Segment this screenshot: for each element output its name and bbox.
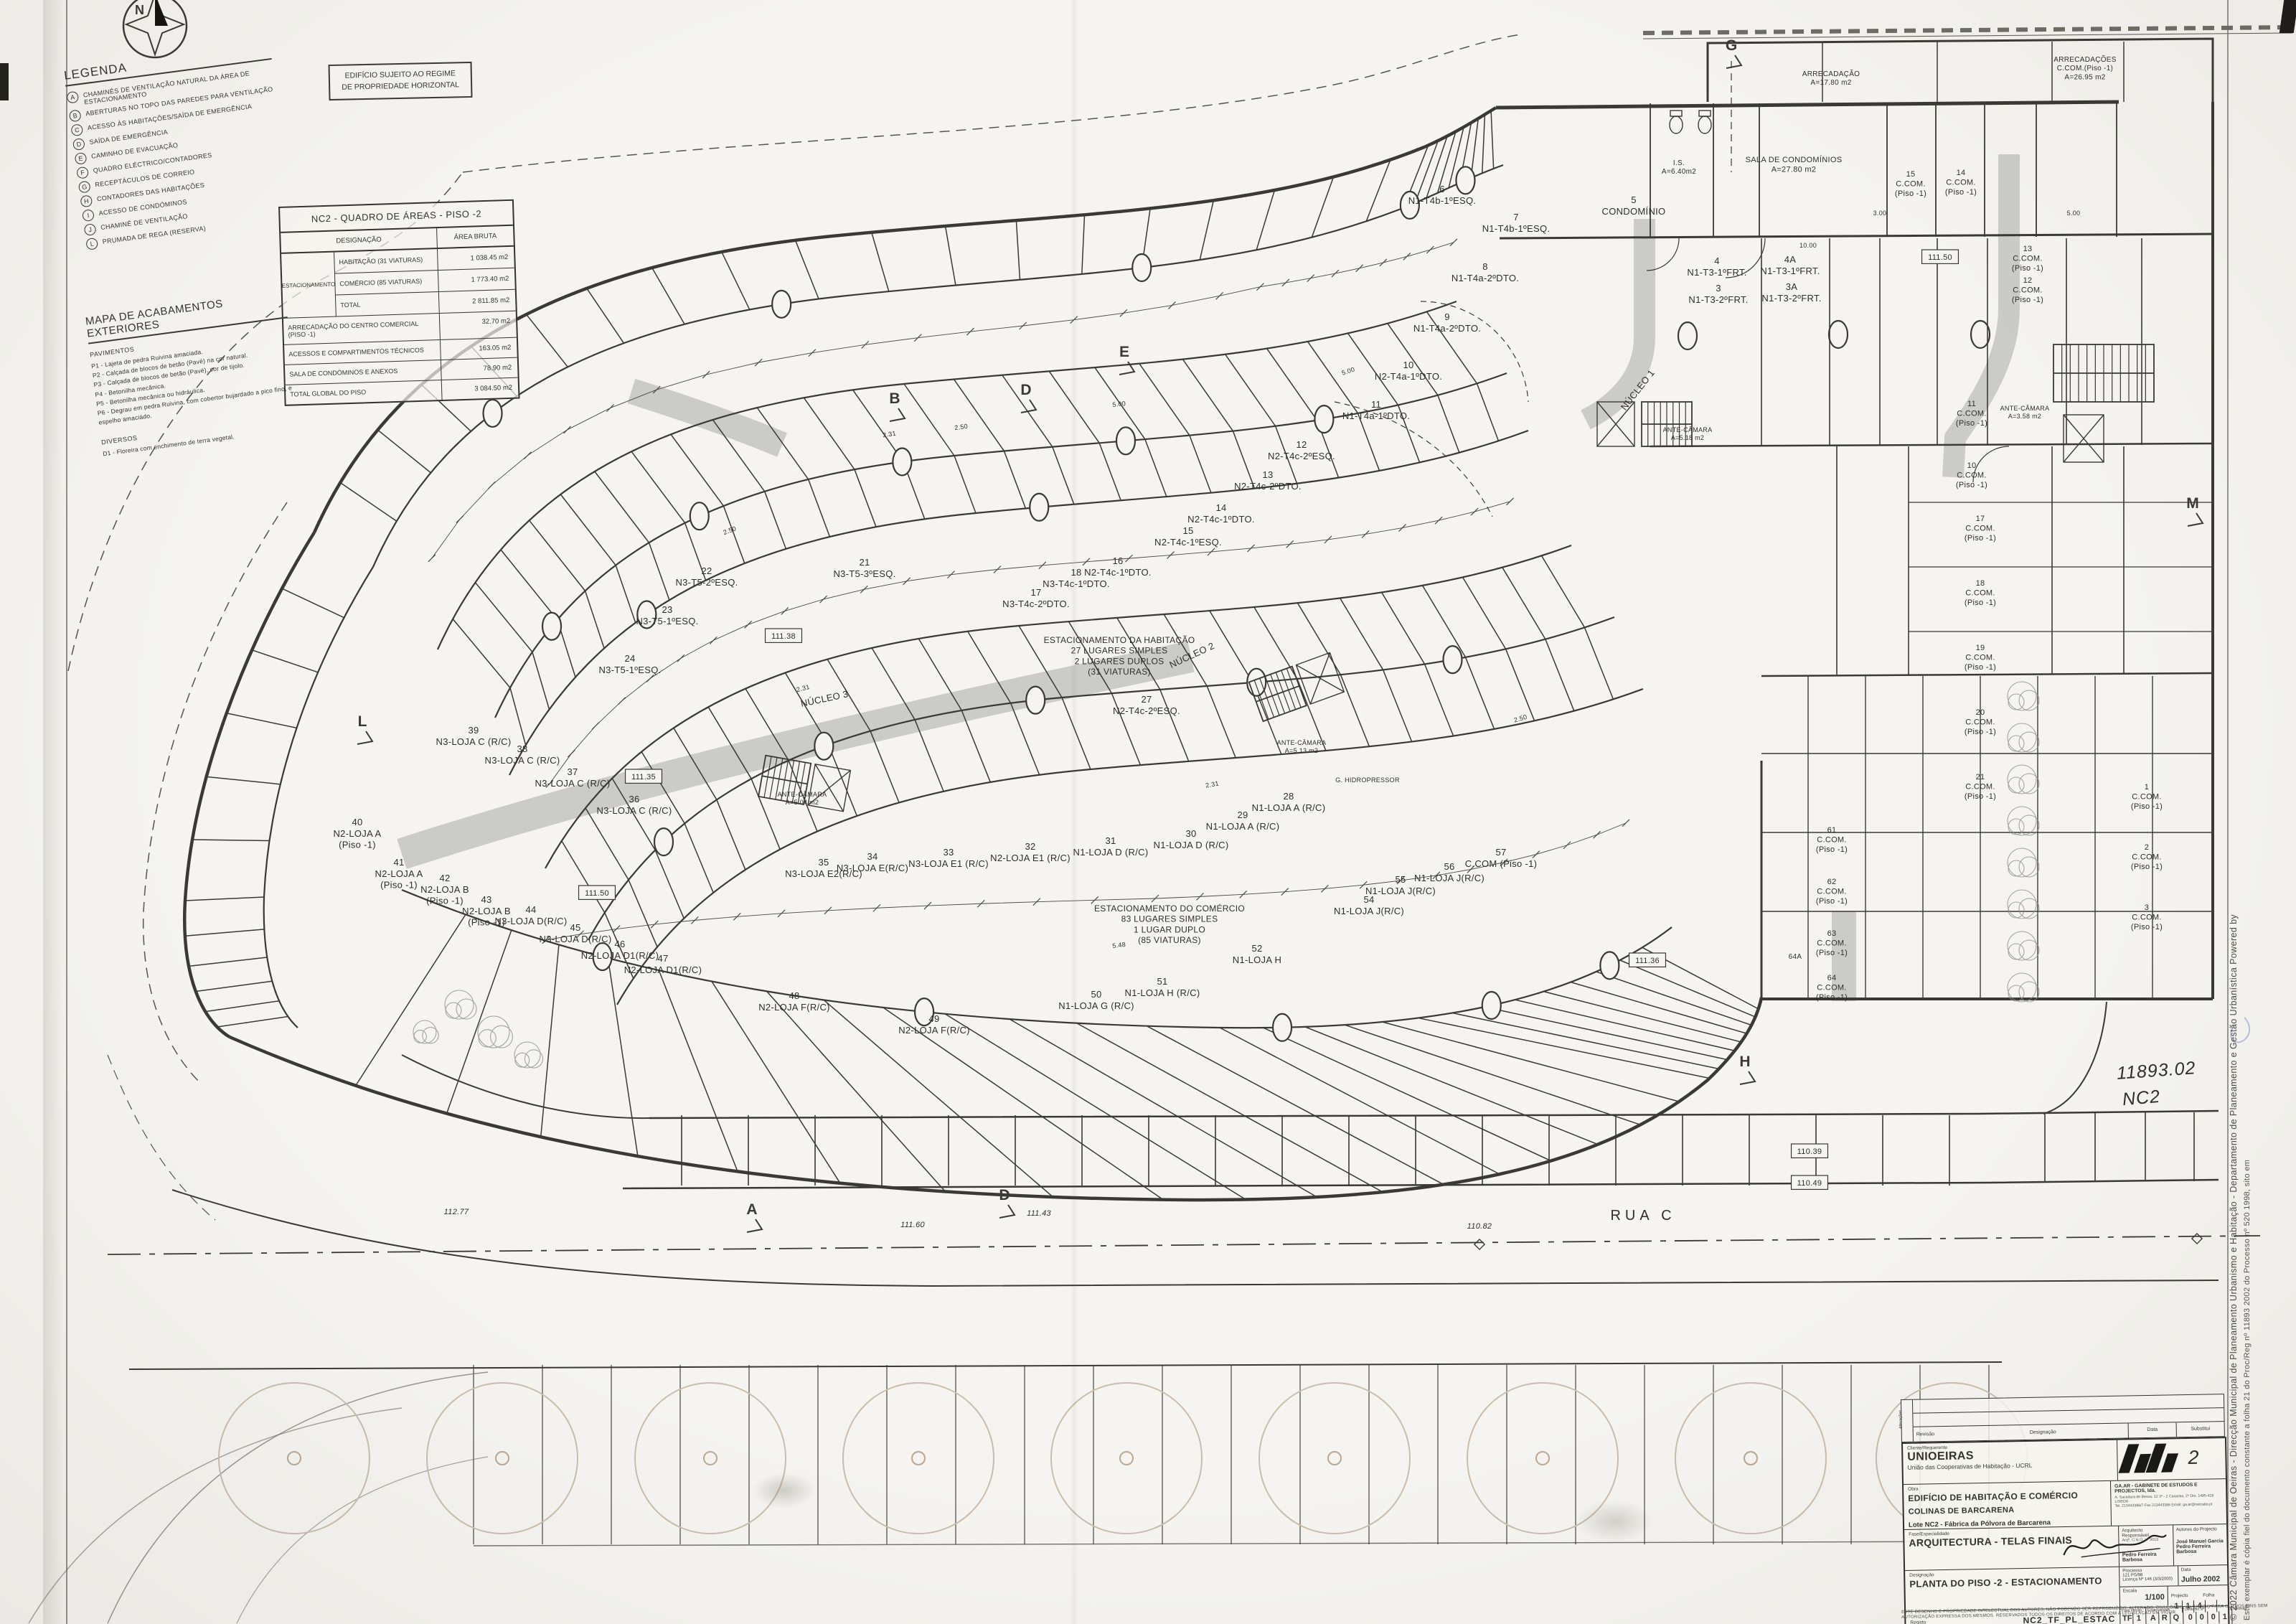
table-cell-valor: 2 811.85 m2	[439, 290, 516, 313]
plan-label: 51N1-LOJA H (R/C)	[1125, 976, 1200, 998]
plan-label: ANTE-CÂMARAA=5.18 m2	[1663, 426, 1713, 441]
svg-text:15N2-T4c-1ºESQ.: 15N2-T4c-1ºESQ.	[1154, 525, 1222, 548]
revision-table: Alterações Revisão Designação Data Subst…	[1901, 1394, 2225, 1442]
svg-text:111.50: 111.50	[1928, 253, 1952, 262]
architect-label: Arquitecto Responsável	[2122, 1527, 2170, 1538]
table-cell-valor: 163.05 m2	[441, 338, 517, 360]
col-designacao: DESIGNAÇÃO	[281, 228, 438, 253]
svg-text:62C.COM.(Piso -1): 62C.COM.(Piso -1)	[1816, 878, 1848, 906]
revision-col-data: Data	[2128, 1422, 2176, 1437]
svg-text:13N2-T4c-2ºDTO.: 13N2-T4c-2ºDTO.	[1234, 469, 1302, 492]
svg-text:17C.COM.(Piso -1): 17C.COM.(Piso -1)	[1965, 515, 1996, 543]
svg-text:2.31: 2.31	[1205, 779, 1219, 789]
plan-label: 112.77	[444, 1208, 469, 1216]
grid-marker: G	[1726, 37, 1737, 54]
svg-text:21C.COM.(Piso -1): 21C.COM.(Piso -1)	[1965, 773, 1996, 801]
svg-text:3C.COM.(Piso -1): 3C.COM.(Piso -1)	[2131, 903, 2163, 931]
svg-text:ESTACIONAMENTO DO COMÉRCIO83 L: ESTACIONAMENTO DO COMÉRCIO83 LUGARES SIM…	[1094, 903, 1245, 945]
legend-key: B	[69, 109, 82, 122]
plan-label: 42N2-LOJA B(Piso -1)	[420, 873, 469, 906]
plan-label: 111.38	[766, 629, 802, 642]
architect-credential: Arqº, C.N.O. nº 3019	[2122, 1537, 2170, 1542]
plan-label: 28N1-LOJA A (R/C)	[1252, 791, 1326, 813]
client-name: UNIOEIRAS	[1907, 1450, 1974, 1463]
finishes-map: MAPA DE ACABAMENTOS EXTERIORES PAVIMENTO…	[85, 289, 303, 459]
legend-key: I	[82, 209, 95, 222]
plan-label: 37N3-LOJA C (R/C)	[535, 766, 611, 789]
plan-label: 14C.COM.(Piso -1)	[1945, 169, 1977, 197]
plan-label: 64A	[1789, 953, 1802, 961]
svg-text:31N1-LOJA D (R/C): 31N1-LOJA D (R/C)	[1073, 835, 1149, 858]
right-wing-walls	[1496, 39, 2213, 999]
svg-text:2.50: 2.50	[722, 525, 737, 536]
firm-address2: Tel. 213443386/7 Fax 213443386 Email: ga…	[2115, 1502, 2223, 1508]
north-letter: N	[135, 3, 144, 17]
stamp-line2: Este exemplar é cópia fiel do documento …	[2243, 42, 2252, 1620]
obra-line2: COLINAS DE BARCARENA	[1909, 1506, 2015, 1516]
svg-text:RUA C: RUA C	[1610, 1208, 1675, 1224]
svg-text:11N1-T4a-1ºDTO.: 11N1-T4a-1ºDTO.	[1342, 399, 1410, 421]
grid-marker: B	[889, 390, 900, 407]
svg-text:24N3-T5-1ºESQ.: 24N3-T5-1ºESQ.	[598, 653, 661, 675]
svg-text:37N3-LOJA C (R/C): 37N3-LOJA C (R/C)	[535, 766, 611, 789]
svg-text:4N1-T3-1ºFRT.: 4N1-T3-1ºFRT.	[1687, 255, 1746, 278]
elevator-icon	[2064, 415, 2104, 462]
plan-label: 5CONDOMÍNIO	[1602, 194, 1666, 217]
svg-text:7N1-T4b-1ºESQ.: 7N1-T4b-1ºESQ.	[1482, 212, 1551, 234]
svg-text:111.35: 111.35	[631, 773, 656, 782]
svg-text:3N1-T3-2ºFRT.: 3N1-T3-2ºFRT.	[1688, 283, 1748, 305]
registo-label: Registo	[1910, 1619, 1953, 1624]
svg-text:111.60: 111.60	[900, 1221, 925, 1229]
data-label: Data	[2181, 1567, 2225, 1572]
plan-label: 24N3-T5-1ºESQ.	[598, 653, 661, 675]
plan-label: 111.60	[900, 1221, 925, 1229]
svg-text:39N3-LOJA C (R/C): 39N3-LOJA C (R/C)	[436, 725, 512, 747]
svg-text:42N2-LOJA B(Piso -1): 42N2-LOJA B(Piso -1)	[420, 873, 469, 906]
plan-label: 110.49	[1792, 1175, 1828, 1189]
table-cell-designacao: HABITAÇÃO (31 VIATURAS)	[334, 249, 438, 274]
municipal-stamp-text: © 2022 Câmara Municipal de Oeiras - Dire…	[2229, 42, 2252, 1620]
svg-text:14C.COM.(Piso -1): 14C.COM.(Piso -1)	[1945, 169, 1977, 197]
plan-label: 15C.COM.(Piso -1)	[1895, 170, 1926, 198]
scanned-floorplan-sheet: { "sheet": { "north_letter": "N", "hp_no…	[0, 0, 2296, 1624]
svg-text:111.43: 111.43	[1027, 1209, 1051, 1218]
table-cell-designacao: TOTAL	[336, 292, 440, 316]
svg-text:61C.COM.(Piso -1): 61C.COM.(Piso -1)	[1816, 826, 1848, 854]
grid-marker: H	[1739, 1053, 1750, 1070]
revision-col-designacao: Designação	[1958, 1428, 2128, 1436]
plan-label: 14N2-T4c-1ºDTO.	[1187, 502, 1255, 525]
col-area-bruta: ÁREA BRUTA	[437, 226, 514, 248]
plan-label: 7N1-T4b-1ºESQ.	[1482, 212, 1551, 234]
svg-text:ANTE-CÂMARAA=5.04 m2: ANTE-CÂMARAA=5.04 m2	[778, 791, 827, 806]
plan-label: 21C.COM.(Piso -1)	[1965, 773, 1996, 801]
plan-label: 5.00	[1341, 365, 1356, 376]
svg-text:16N2-T4c-1ºDTO.: 16N2-T4c-1ºDTO.	[1084, 555, 1152, 578]
plan-label: 57C.COM (Piso -1)	[1465, 847, 1538, 869]
plan-label: 2.50	[722, 525, 737, 536]
plan-label: 21N3-T5-3ºESQ.	[833, 557, 895, 579]
plan-label: 18C.COM.(Piso -1)	[1965, 579, 1996, 607]
grid-marker: E	[1119, 344, 1129, 360]
plan-label: 31N1-LOJA D (R/C)	[1073, 835, 1149, 858]
plan-label: 2.31	[883, 430, 897, 439]
handwritten-lot-code: NC2	[2122, 1086, 2161, 1111]
areas-table: NC2 - QUADRO DE ÁREAS - PISO -2 DESIGNAÇ…	[278, 200, 520, 406]
table-cell-valor: 32.70 m2	[440, 311, 517, 339]
stairs-icon	[2053, 344, 2154, 402]
table-cell-designacao: TOTAL GLOBAL DO PISO	[286, 380, 443, 405]
table-cell-valor: 1 038.45 m2	[438, 247, 514, 271]
legend-key: C	[70, 123, 83, 136]
plan-label: 1C.COM.(Piso -1)	[2131, 783, 2163, 811]
plan-label: G. HIDROPRESSOR	[1335, 776, 1400, 784]
table-cell-designacao: ARRECADAÇÃO DO CENTRO COMERCIAL (PISO -1…	[283, 314, 441, 344]
legend-key: D	[72, 138, 85, 151]
plan-label: 110.39	[1792, 1144, 1828, 1158]
plan-label: I.S.A=6.40m2	[1662, 159, 1696, 176]
svg-text:2.31: 2.31	[883, 430, 897, 439]
plan-label: 49N2-LOJA F(R/C)	[898, 1013, 970, 1036]
svg-text:1C.COM.(Piso -1): 1C.COM.(Piso -1)	[2131, 783, 2163, 811]
areas-group-estacionamento: ESTACIONAMENTOHABITAÇÃO (31 VIATURAS)1 0…	[281, 247, 516, 319]
plan-label: 8N1-T4a-2ºDTO.	[1452, 261, 1519, 283]
svg-text:ANTE-CÂMARAA=3.58 m2: ANTE-CÂMARAA=3.58 m2	[2000, 405, 2050, 420]
plan-label: 32N2-LOJA E1 (R/C)	[990, 841, 1071, 863]
slope-contours	[29, 1372, 488, 1623]
plan-label: 22N3-T5-2ºESQ.	[675, 565, 738, 588]
data-value: Julho 2002	[2181, 1574, 2220, 1584]
svg-text:57C.COM (Piso -1): 57C.COM (Piso -1)	[1465, 847, 1538, 869]
svg-text:G. HIDROPRESSOR: G. HIDROPRESSOR	[1335, 776, 1400, 784]
plan-label: 4N1-T3-1ºFRT.	[1687, 255, 1746, 278]
plan-label: 111.43	[1027, 1209, 1051, 1218]
grid-marker: D	[1020, 382, 1031, 398]
stamp-line1: © 2022 Câmara Municipal de Oeiras - Dire…	[2229, 42, 2239, 1620]
designacao-value: PLANTA DO PISO -2 - ESTACIONAMENTO	[1909, 1575, 2102, 1590]
plan-label: 27N2-T4c-2ºESQ.	[1113, 694, 1180, 716]
svg-text:ANTE-CÂMARAA=5.18 m2: ANTE-CÂMARAA=5.18 m2	[1663, 426, 1713, 441]
plan-label: 111.35	[626, 769, 662, 783]
plan-label: 16N2-T4c-1ºDTO.	[1084, 555, 1152, 578]
svg-text:5.00: 5.00	[1112, 400, 1126, 408]
plan-label: 20C.COM.(Piso -1)	[1965, 708, 1996, 736]
svg-text:9N1-T4a-2ºDTO.: 9N1-T4a-2ºDTO.	[1413, 311, 1481, 334]
plan-label: 111.50	[579, 886, 616, 899]
plan-label: 50N1-LOJA G (R/C)	[1058, 989, 1134, 1011]
author-2: Pedro Ferreira Barbosa	[2176, 1544, 2224, 1554]
legend-key: E	[75, 152, 88, 165]
svg-text:2C.COM.(Piso -1): 2C.COM.(Piso -1)	[2131, 843, 2163, 871]
svg-text:32N2-LOJA E1 (R/C): 32N2-LOJA E1 (R/C)	[990, 841, 1071, 863]
plan-label: NÚCLEO 3	[800, 688, 850, 709]
wc-fixtures	[1670, 111, 1711, 133]
svg-text:49N2-LOJA F(R/C): 49N2-LOJA F(R/C)	[898, 1013, 970, 1036]
svg-text:21N3-T5-3ºESQ.: 21N3-T5-3ºESQ.	[833, 557, 895, 579]
svg-text:52N1-LOJA H: 52N1-LOJA H	[1233, 943, 1281, 965]
plan-label: 3AN1-T3-2ºFRT.	[1761, 281, 1821, 304]
revision-side-label: Alterações	[1901, 1400, 1914, 1442]
svg-text:8N1-T4a-2ºDTO.: 8N1-T4a-2ºDTO.	[1452, 261, 1519, 283]
plan-label: 15N2-T4c-1ºESQ.	[1154, 525, 1222, 548]
client-label: Cliente/Requerente	[1907, 1442, 2112, 1451]
grid-marker: L	[358, 713, 367, 730]
revision-col-revisao: Revisão	[1914, 1431, 1958, 1437]
svg-text:28N1-LOJA A (R/C): 28N1-LOJA A (R/C)	[1252, 791, 1326, 813]
authors-label: Autores do Projecto	[2176, 1526, 2224, 1532]
ramp-shading	[402, 154, 2009, 1001]
table-cell-valor: 1 773.40 m2	[438, 268, 515, 292]
legend-key: L	[85, 238, 98, 250]
fase-value: ARQUITECTURA - TELAS FINAIS	[1909, 1534, 2072, 1549]
svg-text:19C.COM.(Piso -1): 19C.COM.(Piso -1)	[1965, 644, 1996, 672]
svg-text:110.82: 110.82	[1467, 1222, 1492, 1231]
legend-key: G	[78, 181, 91, 194]
svg-text:2.50: 2.50	[954, 423, 969, 432]
plan-label: ANTE-CÂMARAA=3.58 m2	[2000, 405, 2050, 420]
firm-logo: 2	[2117, 1438, 2226, 1475]
svg-text:NÚCLEO 3: NÚCLEO 3	[800, 688, 850, 709]
plan-label: 4AN1-T3-1ºFRT.	[1760, 254, 1820, 276]
plan-label: 3C.COM.(Piso -1)	[2131, 903, 2163, 931]
plan-label: ANTE-CÂMARAA=5.04 m2	[778, 791, 827, 806]
svg-text:10N2-T4a-1ºDTO.: 10N2-T4a-1ºDTO.	[1375, 360, 1442, 382]
plan-label: 52N1-LOJA H	[1233, 943, 1281, 965]
svg-text:110.49: 110.49	[1797, 1179, 1822, 1188]
svg-text:4AN1-T3-1ºFRT.: 4AN1-T3-1ºFRT.	[1760, 254, 1820, 276]
plan-label: 54N1-LOJA J(R/C)	[1334, 894, 1404, 916]
svg-text:5.48: 5.48	[1112, 941, 1126, 949]
legend: LEGENDA ACHAMINÉS DE VENTILAÇÃO NATURAL …	[63, 40, 308, 253]
svg-text:50N1-LOJA G (R/C): 50N1-LOJA G (R/C)	[1058, 989, 1134, 1011]
table-cell-designacao: COMÉRCIO (85 VIATURAS)	[335, 271, 439, 296]
svg-text:3.00: 3.00	[1873, 210, 1887, 217]
grid-marker: M	[2186, 495, 2199, 512]
firm-name: GA.AR - GABINETE DE ESTUDOS E PROJECTOS,…	[2114, 1482, 2222, 1494]
licenca-value: Licença Nº 146 (3/3/2000)	[2122, 1577, 2175, 1582]
obra-line1: EDIFÍCIO DE HABITAÇÃO E COMÉRCIO	[1908, 1491, 2078, 1503]
svg-text:110.39: 110.39	[1797, 1147, 1822, 1156]
svg-text:111.36: 111.36	[1635, 957, 1660, 965]
plan-label: 111.36	[1629, 953, 1666, 967]
svg-text:15C.COM.(Piso -1): 15C.COM.(Piso -1)	[1895, 170, 1926, 198]
svg-text:5.00: 5.00	[2067, 210, 2081, 217]
plan-label: ESTACIONAMENTO DO COMÉRCIO83 LUGARES SIM…	[1094, 903, 1245, 945]
plan-label: 5.48	[1112, 941, 1126, 949]
plan-label: 34N3-LOJA E(R/C)	[837, 851, 908, 873]
legend-key: A	[66, 91, 79, 104]
architect-name: Pedro Ferreira Barbosa	[2122, 1552, 2170, 1562]
svg-text:14N2-T4c-1ºDTO.: 14N2-T4c-1ºDTO.	[1187, 502, 1255, 525]
plan-label: 61C.COM.(Piso -1)	[1816, 826, 1848, 854]
plan-label: 5.00	[1112, 400, 1126, 408]
legend-key: J	[84, 223, 97, 236]
table-cell-valor: 78.90 m2	[441, 358, 518, 380]
escala-value: 1/100	[2145, 1593, 2165, 1602]
grid-marker: D	[999, 1187, 1010, 1203]
folha-label: Folha	[2203, 1592, 2214, 1597]
title-block: Cliente/Requerente UNIOEIRAS União das C…	[1901, 1437, 2230, 1624]
svg-text:111.50: 111.50	[585, 889, 609, 898]
grid-marker: A	[746, 1201, 757, 1218]
svg-text:ARRECADAÇÕESC.COM.(Piso -1)A=2: ARRECADAÇÕESC.COM.(Piso -1)A=26.95 m2	[2053, 55, 2117, 81]
turning-path	[1421, 301, 1528, 402]
svg-text:111.38: 111.38	[771, 632, 796, 641]
tree-symbols	[219, 1383, 2027, 1534]
north-arrow-icon: N	[123, 0, 187, 57]
plan-label: 17C.COM.(Piso -1)	[1965, 515, 1996, 543]
plan-label: 2C.COM.(Piso -1)	[2131, 843, 2163, 871]
svg-text:34N3-LOJA E(R/C): 34N3-LOJA E(R/C)	[837, 851, 908, 873]
plan-label: 2.31	[796, 683, 811, 693]
revision-col-substitui: Substitui	[2176, 1422, 2224, 1437]
group-label: ESTACIONAMENTO	[281, 253, 337, 318]
plan-labels: 39N3-LOJA C (R/C)38N3-LOJA C (R/C)37N3-L…	[333, 55, 2163, 1231]
legend-key: F	[76, 166, 89, 179]
projecto-label: Projecto	[2171, 1593, 2200, 1599]
svg-text:17N3-T4c-2ºDTO.: 17N3-T4c-2ºDTO.	[1002, 587, 1070, 609]
areas-rows: ARRECADAÇÃO DO CENTRO COMERCIAL (PISO -1…	[283, 311, 519, 405]
svg-text:51N1-LOJA H (R/C): 51N1-LOJA H (R/C)	[1125, 976, 1200, 998]
plan-label: 5.00	[2067, 210, 2081, 217]
plan-label: 10N2-T4a-1ºDTO.	[1375, 360, 1442, 382]
svg-text:64A: 64A	[1789, 953, 1802, 961]
svg-text:ARRECADAÇÃOA=17.80 m2: ARRECADAÇÃOA=17.80 m2	[1802, 69, 1860, 87]
plan-label: 2.50	[954, 423, 969, 432]
plan-label: 9N1-T4a-2ºDTO.	[1413, 311, 1481, 334]
svg-text:22N3-T5-2ºESQ.: 22N3-T5-2ºESQ.	[675, 565, 738, 588]
plan-label: 40N2-LOJA A(Piso -1)	[333, 817, 381, 850]
svg-text:112.77: 112.77	[444, 1208, 469, 1216]
plan-label: 2.31	[1205, 779, 1219, 789]
plan-label: 110.82	[1467, 1222, 1492, 1231]
plan-label: RUA C	[1610, 1208, 1675, 1224]
svg-text:5CONDOMÍNIO: 5CONDOMÍNIO	[1602, 194, 1666, 217]
plan-label: 10.00	[1799, 242, 1817, 249]
plan-label: 17N3-T4c-2ºDTO.	[1002, 587, 1070, 609]
svg-text:I.S.A=6.40m2: I.S.A=6.40m2	[1662, 159, 1696, 176]
svg-text:40N2-LOJA A(Piso -1): 40N2-LOJA A(Piso -1)	[333, 817, 381, 850]
plan-label: ARRECADAÇÕESC.COM.(Piso -1)A=26.95 m2	[2053, 55, 2117, 81]
svg-text:3AN1-T3-2ºFRT.: 3AN1-T3-2ºFRT.	[1761, 281, 1821, 304]
plan-label: 19C.COM.(Piso -1)	[1965, 644, 1996, 672]
svg-text:27N2-T4c-2ºESQ.: 27N2-T4c-2ºESQ.	[1113, 694, 1180, 716]
svg-text:33N3-LOJA E1 (R/C): 33N3-LOJA E1 (R/C)	[908, 847, 989, 869]
plan-label: 11N1-T4a-1ºDTO.	[1342, 399, 1410, 421]
grid-markers: ADBDEGHLM	[357, 37, 2203, 1232]
svg-text:54N1-LOJA J(R/C): 54N1-LOJA J(R/C)	[1334, 894, 1404, 916]
horizontal-property-note: EDIFÍCIO SUJEITO AO REGIME DE PROPRIEDAD…	[329, 62, 473, 100]
svg-text:2.31: 2.31	[796, 683, 811, 693]
plan-label: ARRECADAÇÃOA=17.80 m2	[1802, 69, 1860, 87]
street-centerline	[108, 1236, 2260, 1254]
svg-text:10.00: 10.00	[1799, 242, 1817, 249]
plan-label: 39N3-LOJA C (R/C)	[436, 725, 512, 747]
plan-label: 3N1-T3-2ºFRT.	[1688, 283, 1748, 305]
plan-label: 13N2-T4c-2ºDTO.	[1234, 469, 1302, 492]
plan-label: 111.50	[1922, 250, 1959, 263]
plan-label: 33N3-LOJA E1 (R/C)	[908, 847, 989, 869]
plan-label: 3.00	[1873, 210, 1887, 217]
hp-note-line2: DE PROPRIEDADE HORIZONTAL	[333, 80, 468, 94]
legend-items: ACHAMINÉS DE VENTILAÇÃO NATURAL DA ÁREA …	[66, 63, 307, 250]
legend-key: H	[80, 194, 93, 207]
plan-label: 62C.COM.(Piso -1)	[1816, 878, 1848, 906]
table-cell-valor: 3 084.50 m2	[442, 378, 519, 400]
logo-sheet-number: 2	[2188, 1446, 2200, 1468]
svg-text:5.00: 5.00	[1341, 365, 1356, 376]
svg-text:18C.COM.(Piso -1): 18C.COM.(Piso -1)	[1965, 579, 1996, 607]
svg-text:20C.COM.(Piso -1): 20C.COM.(Piso -1)	[1965, 708, 1996, 736]
